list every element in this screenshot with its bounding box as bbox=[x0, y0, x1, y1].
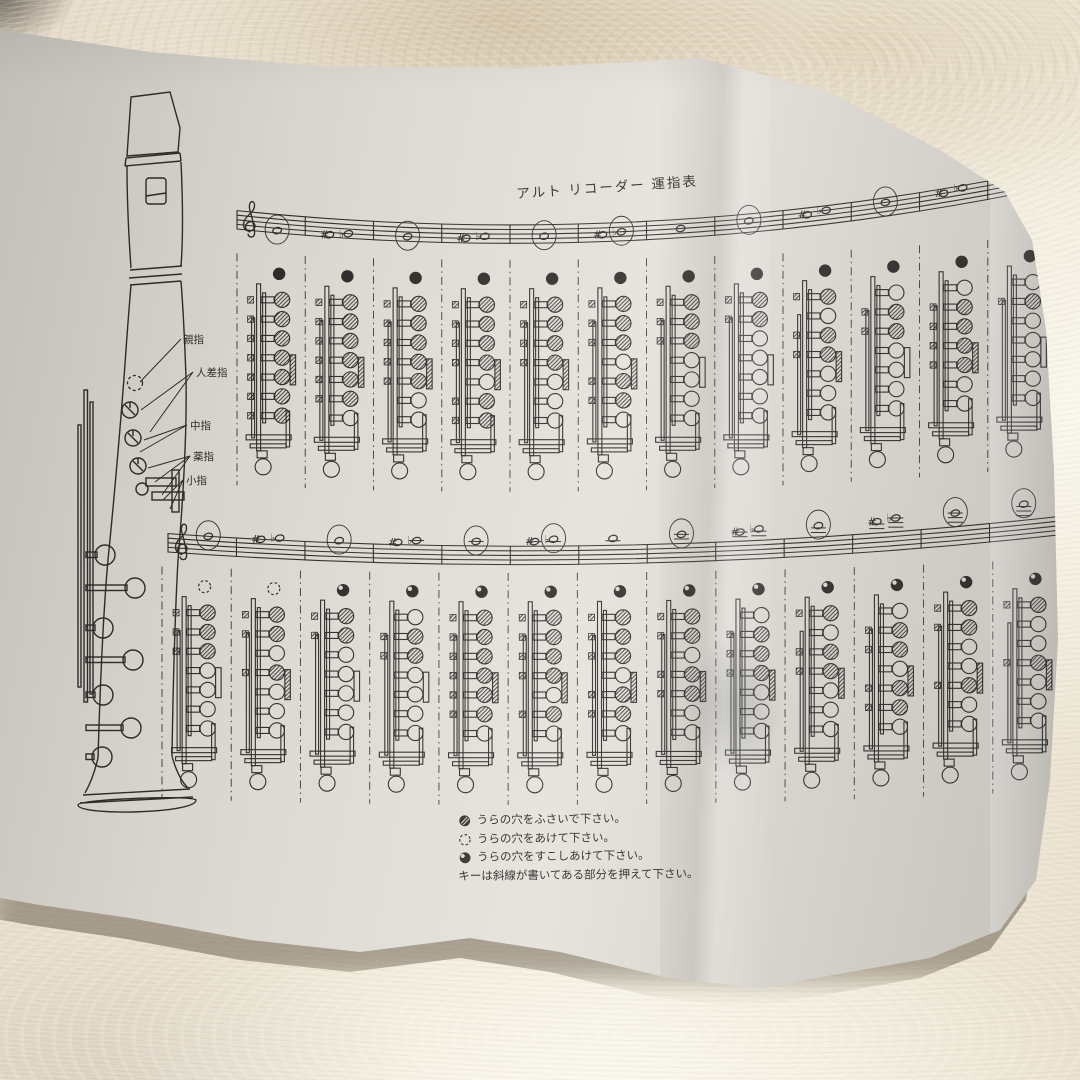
finger-hole bbox=[892, 700, 907, 715]
bell-key-pad bbox=[804, 772, 820, 788]
finger-hole bbox=[615, 706, 630, 721]
finger-hole bbox=[408, 648, 423, 663]
bell-key-pad bbox=[1011, 764, 1027, 780]
finger-hole bbox=[408, 687, 423, 702]
finger-hole bbox=[546, 687, 561, 702]
fingering-column bbox=[587, 585, 637, 792]
thumb-hole bbox=[752, 583, 764, 595]
side-key bbox=[285, 670, 291, 700]
finger-hole bbox=[200, 605, 215, 620]
finger-hole bbox=[338, 628, 353, 643]
back-hole-closed-icon bbox=[458, 814, 472, 828]
bell-key-pad bbox=[458, 777, 474, 793]
finger-hole bbox=[962, 678, 977, 693]
finger-hole bbox=[1031, 617, 1046, 632]
legend-text-open: うらの穴をあけて下さい。 bbox=[477, 829, 615, 849]
fingering-column bbox=[379, 585, 429, 792]
bell-key-pad bbox=[388, 776, 404, 792]
bell-key-pad bbox=[319, 775, 335, 791]
finger-hole bbox=[269, 626, 284, 641]
thumb-hole bbox=[545, 586, 557, 598]
bell-key-pad bbox=[596, 776, 612, 792]
finger-hole bbox=[1031, 674, 1046, 689]
side-key bbox=[423, 672, 429, 702]
finger-hole bbox=[408, 667, 423, 682]
finger-hole bbox=[477, 629, 492, 644]
finger-hole bbox=[615, 668, 630, 683]
side-key bbox=[977, 663, 983, 693]
finger-hole bbox=[477, 649, 492, 664]
finger-hole bbox=[200, 682, 215, 697]
finger-hole bbox=[1031, 597, 1046, 612]
finger-hole bbox=[962, 658, 977, 673]
side-key bbox=[562, 673, 568, 703]
finger-hole bbox=[892, 661, 907, 676]
bell-key-pad bbox=[665, 775, 681, 791]
finger-hole bbox=[685, 628, 700, 643]
finger-hole bbox=[823, 683, 838, 698]
bell-key-pad bbox=[734, 774, 750, 790]
finger-hole bbox=[338, 705, 353, 720]
thumb-hole bbox=[199, 581, 211, 593]
bell-key-pad bbox=[942, 767, 958, 783]
thumb-hole bbox=[268, 583, 280, 595]
finger-hole bbox=[200, 702, 215, 717]
finger-hole bbox=[477, 668, 492, 683]
finger-hole bbox=[823, 606, 838, 621]
finger-hole bbox=[200, 624, 215, 639]
finger-hole bbox=[754, 608, 769, 623]
fingering-chart-sheet: アルト リコーダー 運指表 親指人差指中指薬指小指 #♭#♭#♭#♭#♭ #♭#… bbox=[0, 0, 1080, 1080]
side-key bbox=[631, 672, 637, 702]
finger-hole bbox=[269, 607, 284, 622]
finger-hole bbox=[338, 609, 353, 624]
thumb-hole bbox=[1029, 573, 1041, 585]
thumb-hole bbox=[475, 586, 487, 598]
fingering-column bbox=[449, 586, 499, 793]
finger-hole bbox=[269, 704, 284, 719]
finger-hole bbox=[685, 647, 700, 662]
side-key bbox=[839, 668, 845, 698]
finger-hole bbox=[200, 663, 215, 678]
finger-hole bbox=[269, 684, 284, 699]
finger-hole bbox=[615, 648, 630, 663]
legend-key-note-text: キーは斜線が書いてある部分を押えて下さい。 bbox=[458, 865, 698, 886]
side-key bbox=[354, 671, 360, 701]
photo-stage: アルト リコーダー 運指表 親指人差指中指薬指小指 #♭#♭#♭#♭#♭ #♭#… bbox=[0, 0, 1080, 1080]
legend-text-slightly-open: うらの穴をすこしあけて下さい。 bbox=[477, 847, 650, 867]
finger-hole bbox=[269, 646, 284, 661]
finger-hole bbox=[546, 610, 561, 625]
legend: うらの穴をふさいで下さい。 うらの穴をあけて下さい。 うらの穴をすこしあけて下さ… bbox=[458, 808, 819, 886]
fingering-column bbox=[310, 584, 360, 791]
finger-hole bbox=[338, 666, 353, 681]
finger-hole bbox=[546, 649, 561, 664]
finger-hole bbox=[546, 707, 561, 722]
ink-smudge bbox=[688, 636, 780, 776]
finger-hole bbox=[892, 681, 907, 696]
finger-hole bbox=[615, 687, 630, 702]
finger-hole bbox=[754, 627, 769, 642]
thumb-hole bbox=[683, 584, 695, 596]
finger-hole bbox=[823, 644, 838, 659]
finger-hole bbox=[892, 642, 907, 657]
finger-hole bbox=[1031, 636, 1046, 651]
finger-hole bbox=[962, 620, 977, 635]
thumb-hole bbox=[406, 585, 418, 597]
fingering-column bbox=[241, 583, 291, 790]
side-key bbox=[493, 673, 499, 703]
bell-key-pad bbox=[181, 772, 197, 788]
finger-hole bbox=[892, 603, 907, 618]
bell-key-pad bbox=[250, 774, 266, 790]
finger-hole bbox=[962, 639, 977, 654]
finger-hole bbox=[962, 697, 977, 712]
finger-hole bbox=[1031, 655, 1046, 670]
finger-hole bbox=[546, 668, 561, 683]
thumb-hole bbox=[821, 581, 833, 593]
back-hole-open-icon bbox=[458, 832, 472, 846]
finger-hole bbox=[1031, 694, 1046, 709]
finger-hole bbox=[477, 610, 492, 625]
fingering-column bbox=[795, 581, 845, 788]
bell-key-pad bbox=[873, 770, 889, 786]
legend-key-note: キーは斜線が書いてある部分を押えて下さい。 bbox=[458, 864, 818, 886]
finger-hole bbox=[338, 647, 353, 662]
finger-hole bbox=[823, 664, 838, 679]
side-key bbox=[1046, 660, 1052, 690]
back-hole-slightly-open-icon bbox=[458, 851, 472, 865]
finger-hole bbox=[200, 644, 215, 659]
side-key bbox=[216, 668, 222, 698]
finger-hole bbox=[269, 665, 284, 680]
finger-hole bbox=[892, 623, 907, 638]
finger-hole bbox=[408, 706, 423, 721]
finger-hole bbox=[823, 625, 838, 640]
legend-text-closed: うらの穴をふさいで下さい。 bbox=[477, 810, 626, 830]
fingering-column bbox=[933, 576, 983, 783]
finger-hole bbox=[477, 707, 492, 722]
finger-hole bbox=[823, 702, 838, 717]
bell-key-pad bbox=[527, 777, 543, 793]
thumb-hole bbox=[614, 585, 626, 597]
finger-hole bbox=[477, 687, 492, 702]
fingering-column bbox=[864, 579, 914, 786]
thumb-hole bbox=[337, 584, 349, 596]
side-key bbox=[908, 666, 914, 696]
finger-hole bbox=[615, 610, 630, 625]
fingering-column bbox=[518, 586, 568, 793]
fingering-column bbox=[1002, 573, 1052, 780]
thumb-hole bbox=[960, 576, 972, 588]
thumb-hole bbox=[891, 579, 903, 591]
fingering-row-2 bbox=[0, 0, 1080, 1080]
finger-hole bbox=[408, 610, 423, 625]
finger-hole bbox=[338, 686, 353, 701]
finger-hole bbox=[685, 609, 700, 624]
finger-hole bbox=[546, 629, 561, 644]
finger-hole bbox=[962, 601, 977, 616]
finger-hole bbox=[615, 629, 630, 644]
fingering-column bbox=[172, 581, 222, 788]
finger-hole bbox=[408, 629, 423, 644]
